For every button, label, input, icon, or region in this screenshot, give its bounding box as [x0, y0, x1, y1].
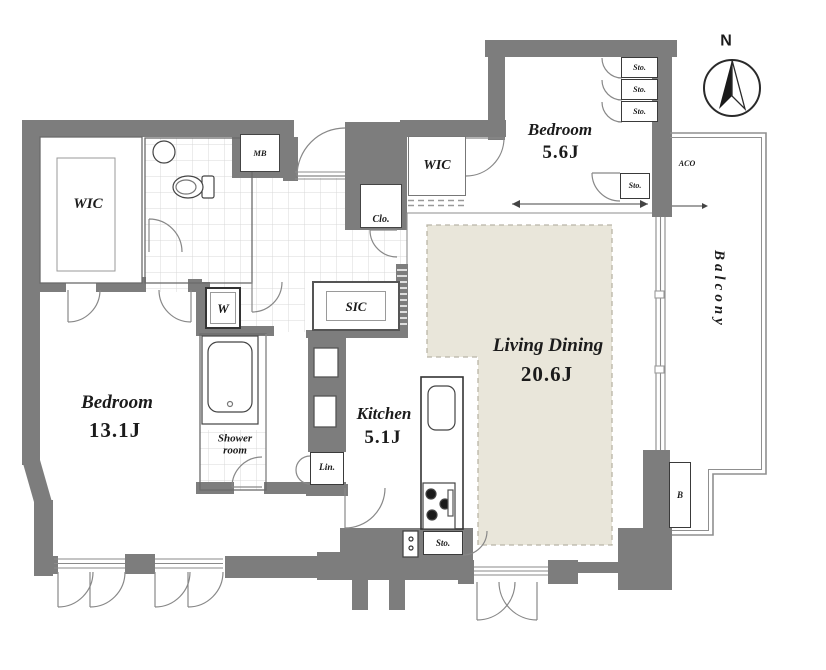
wic-right-box: WIC	[408, 136, 466, 196]
mb-label: MB	[253, 149, 266, 158]
sto-box-bedroom: Sto.	[620, 173, 650, 199]
wic-right-label: WIC	[423, 159, 450, 173]
floorplan: MB Clo. WIC Sto. Sto. Sto. Sto. Sto. SIC…	[0, 0, 826, 670]
sto-box-kitchen: Sto.	[423, 531, 463, 555]
balcony-label: Balcony	[710, 250, 727, 380]
wic-left-label: WIC	[73, 197, 102, 213]
clo-label: Clo.	[373, 215, 390, 225]
living-dining-size: 20.6J	[521, 363, 573, 385]
floorplan-drawing	[0, 0, 826, 670]
north-label: N	[720, 34, 732, 51]
sto-box-3: Sto.	[621, 101, 658, 122]
bedroom-right-name: Bedroom	[528, 121, 592, 139]
north-arrow-icon	[719, 60, 732, 109]
sto-box-2: Sto.	[621, 79, 658, 100]
kitchen-name: Kitchen	[357, 405, 412, 423]
aco-label: ACO	[679, 160, 695, 168]
sic-box: SIC	[312, 281, 400, 331]
shower-room-label: Shower room	[206, 433, 264, 456]
bedroom-left-size: 13.1J	[89, 419, 141, 441]
mb-box: MB	[240, 134, 280, 172]
sto-label: Sto.	[629, 182, 642, 190]
compass-icon	[704, 60, 760, 116]
w-box: W	[205, 287, 241, 329]
sic-label: SIC	[346, 300, 367, 313]
clo-box: Clo.	[360, 184, 402, 228]
sto-label: Sto.	[633, 86, 646, 94]
kitchen-size: 5.1J	[364, 428, 401, 448]
toilet-tank-icon	[202, 176, 214, 198]
sink-icon	[153, 141, 175, 163]
sto-label: Sto.	[633, 108, 646, 116]
washer-label: W	[217, 302, 229, 315]
kitchen-sink-icon	[428, 386, 455, 430]
sto-label: Sto.	[633, 64, 646, 72]
b-label: B	[677, 491, 683, 500]
living-dining-name: Living Dining	[493, 336, 603, 356]
bedroom-right-size: 5.6J	[542, 143, 579, 163]
bedroom-left-name: Bedroom	[81, 393, 153, 413]
lin-box: Lin.	[310, 452, 344, 485]
sto-box-1: Sto.	[621, 57, 658, 78]
b-box: B	[669, 462, 691, 528]
sto-label: Sto.	[436, 539, 450, 548]
lin-label: Lin.	[319, 464, 335, 474]
